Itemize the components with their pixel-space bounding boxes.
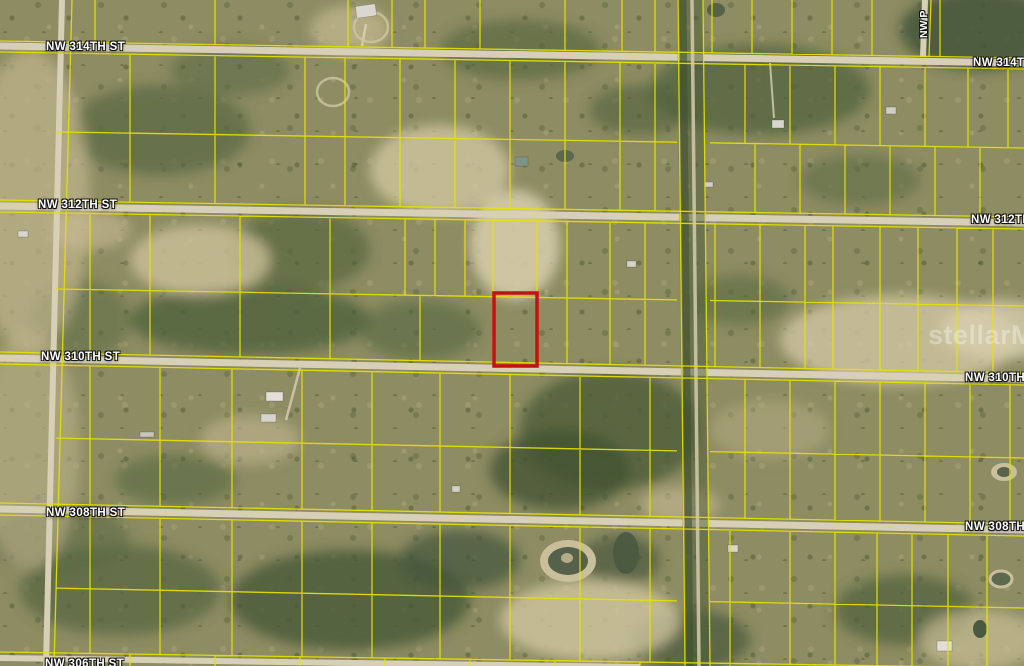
street-label-nw-310th-st-left: NW 310TH ST: [41, 352, 120, 364]
pond-dark: [613, 532, 639, 574]
pond-top-center: [707, 3, 725, 17]
driveway-left: [286, 368, 300, 420]
pond-ring-right-water: [997, 467, 1011, 477]
street-label-nw-312th-st-left: NW 312TH ST: [38, 200, 117, 212]
street-label-nw-308th-st-right: NW 308TH ST: [965, 522, 1024, 534]
map-graphics: [0, 0, 1024, 666]
stellar-mls-watermark: stellarMLS: [928, 320, 1024, 351]
pond-ring-right2: [990, 571, 1012, 587]
street-label-nw-314th-st-left: NW 314TH ST: [46, 42, 125, 54]
street-label-nw-306th-st-bottom: NW 306TH ST: [45, 659, 124, 666]
street-label-nw-310th-st-right: NW 310TH ST: [965, 373, 1024, 385]
subject-parcel-outline: [494, 293, 537, 366]
street-label-nw-308th-st-left: NW 308TH ST: [46, 508, 125, 520]
road-nw-308th: [0, 509, 1024, 530]
pond-small-bottomright: [973, 620, 987, 638]
street-label-nw-314th-st-right: NW 314TH ST: [973, 58, 1024, 70]
pond-island: [561, 553, 573, 563]
street-label-nw-p-vertical: NW P: [919, 0, 933, 38]
canal-corridor: [683, 0, 699, 666]
aerial-parcel-map: NW 314TH ST NW 314TH ST NW 312TH ST NW 3…: [0, 0, 1024, 666]
street-label-nw-312th-st-right: NW 312TH ST: [971, 215, 1024, 227]
terrain-patches: [0, 0, 1024, 666]
